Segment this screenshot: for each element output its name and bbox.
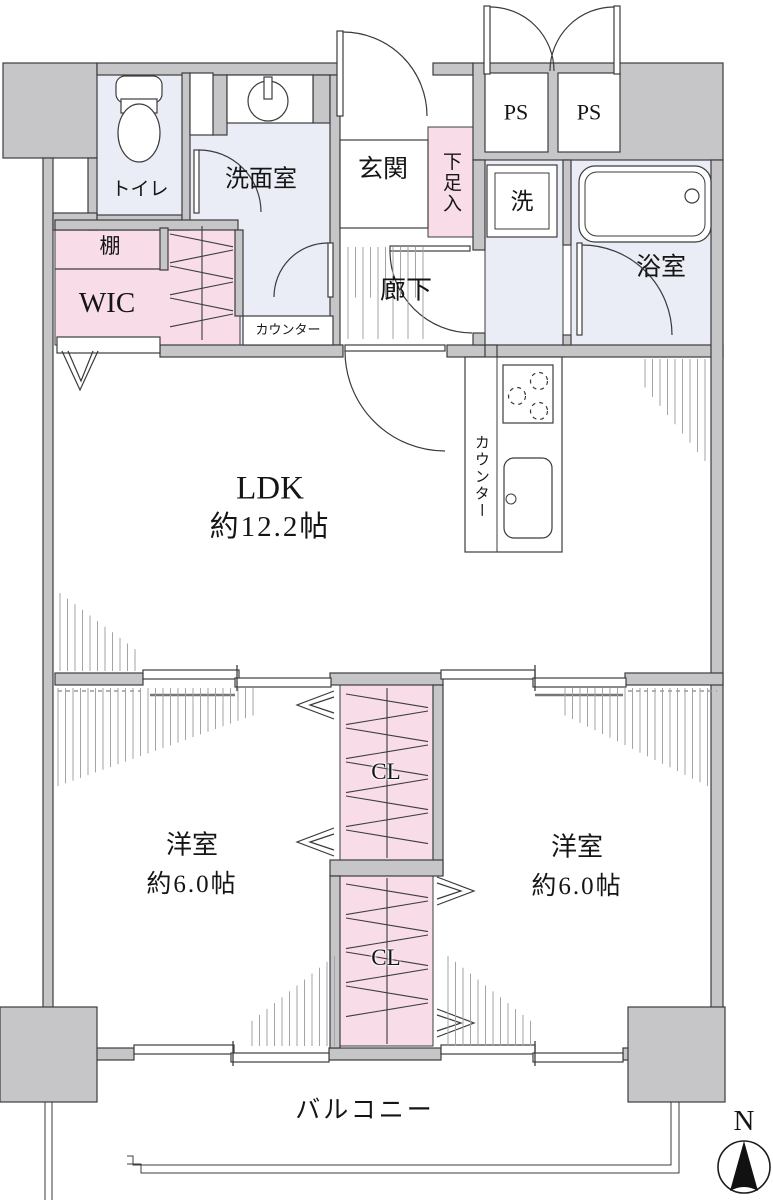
vanity-sink-icon	[227, 75, 313, 123]
room-label-toilet: トイレ	[111, 180, 168, 200]
room-label-ldk-size: 約12.2帖	[210, 512, 331, 542]
room-label-closet-1: CL	[371, 760, 400, 784]
storage-niche	[190, 73, 213, 135]
floor-plan: トイレ 洗面室 玄関 下足入 PS PS 洗 浴室 棚 WIC カウンター 廊下…	[0, 0, 773, 1200]
room-label-bedroom-1-size: 約6.0帖	[146, 872, 237, 898]
wic-opening	[57, 337, 160, 353]
room-label-pipe-shaft-1: PS	[504, 100, 528, 123]
bathtub-icon	[579, 166, 711, 242]
label-counter: カウンター	[255, 323, 320, 337]
room-label-washer: 洗	[511, 190, 534, 214]
room-label-balcony: バルコニー	[295, 1098, 435, 1124]
room-label-bedroom-2-size: 約6.0帖	[531, 874, 622, 900]
room-label-bedroom-1: 洋室	[166, 831, 218, 858]
room-label-entrance: 玄関	[358, 157, 408, 183]
compass	[718, 1141, 770, 1193]
label-kitchen-counter: カウンター	[472, 435, 488, 520]
room-label-pipe-shaft-2: PS	[577, 100, 601, 123]
room-label-washroom: 洗面室	[225, 167, 297, 192]
wic-folding-door	[62, 351, 98, 390]
entrance-floor	[340, 140, 428, 228]
room-label-corridor: 廊下	[380, 276, 432, 303]
room-label-closet-2: CL	[371, 946, 400, 970]
toilet-icon	[116, 76, 162, 162]
room-label-wic: WIC	[79, 288, 135, 318]
entrance-door-leaf	[337, 31, 343, 116]
stove-icon	[503, 365, 553, 423]
room-label-bedroom-2: 洋室	[551, 833, 603, 860]
room-label-bathroom: 浴室	[636, 255, 686, 281]
kitchen-sink-icon	[504, 458, 552, 538]
compass-north-label: N	[734, 1106, 755, 1136]
room-label-ldk: LDK	[236, 472, 304, 507]
entrance-door-swing	[343, 32, 427, 116]
room-label-shelf: 棚	[100, 235, 121, 257]
room-label-shoe-cabinet: 下足入	[440, 152, 460, 215]
